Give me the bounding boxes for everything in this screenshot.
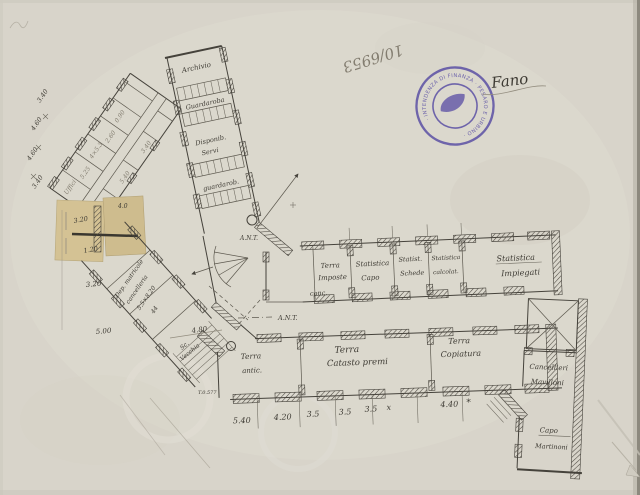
survey-mark: T.0.577 (198, 390, 217, 396)
room-label: Capo (361, 274, 380, 283)
room-label: Impiegati (500, 268, 541, 279)
room-label: Copiatura (441, 349, 482, 359)
dim: 4.40 (439, 400, 458, 410)
dim: 5.40 (233, 416, 251, 426)
room-label: Statist. (398, 255, 422, 264)
dim: 3.5 (339, 407, 352, 416)
dim: * (466, 398, 471, 408)
room-label: antic. (242, 366, 262, 375)
label-ant-upper: A.N.T. (239, 235, 258, 242)
room-label: calcolat. (433, 268, 459, 276)
label-ant-lower: A.N.T. (277, 314, 298, 322)
patch-dim: 4.0 (117, 203, 128, 210)
room-label: Terra (448, 336, 470, 346)
room-label: Martinoni (534, 442, 568, 451)
room-label: Statistica (431, 254, 460, 262)
dim: 3.5 (364, 404, 377, 413)
room-label: Statistica (496, 253, 535, 264)
room-label: Imposte (317, 273, 347, 282)
room-label: Mavilloni (530, 378, 564, 387)
room-label: Schede (400, 269, 425, 278)
scanned-floor-plan-sheet: Uffici 5.25 4×5.3 2.60 0.90 2.40 5.40 3.… (0, 0, 640, 495)
room-label: Terra (334, 345, 359, 356)
patch-dim: 5.00 (95, 327, 112, 336)
room-label: Catasto premi (327, 357, 389, 369)
room-label: Statistica (356, 259, 390, 268)
dim: x (386, 403, 391, 412)
dim: 3.5 (307, 409, 320, 418)
room-label: Terra (241, 351, 262, 361)
room-label: Terra (321, 261, 340, 270)
room-label: Cancellieri (529, 363, 568, 373)
dim: 4.20 (273, 412, 292, 422)
room-label: conc. (310, 289, 328, 298)
room-label: Capo (540, 426, 559, 435)
floor-plan-drawing: Uffici 5.25 4×5.3 2.60 0.90 2.40 5.40 3.… (0, 0, 640, 495)
